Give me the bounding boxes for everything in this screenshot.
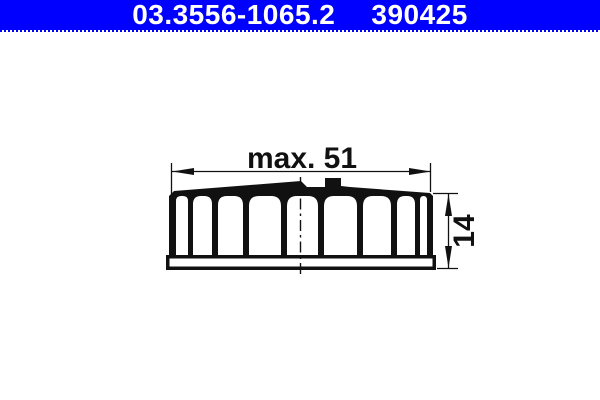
height-dimension-arrow-bottom	[445, 246, 452, 268]
knurl-rib	[287, 196, 318, 256]
technical-drawing-canvas: max. 51 14	[0, 0, 600, 400]
knurl-rib	[420, 196, 427, 256]
width-dimension-arrow-right	[409, 168, 431, 175]
catalog-page: 03.3556-1065.2 390425 m	[0, 0, 600, 400]
height-dimension-label: 14	[448, 214, 481, 248]
height-dimension-arrow-top	[445, 194, 452, 216]
knurl-rib	[218, 196, 243, 256]
knurl-rib	[363, 196, 391, 256]
width-dimension-label: max. 51	[247, 142, 357, 175]
knurl-rib	[193, 196, 212, 256]
knurl-rib	[176, 196, 188, 256]
width-dimension-arrow-left	[172, 168, 194, 175]
knurl-rib	[324, 196, 357, 256]
knurl-rib	[397, 196, 415, 256]
knurl-rib	[249, 196, 281, 256]
